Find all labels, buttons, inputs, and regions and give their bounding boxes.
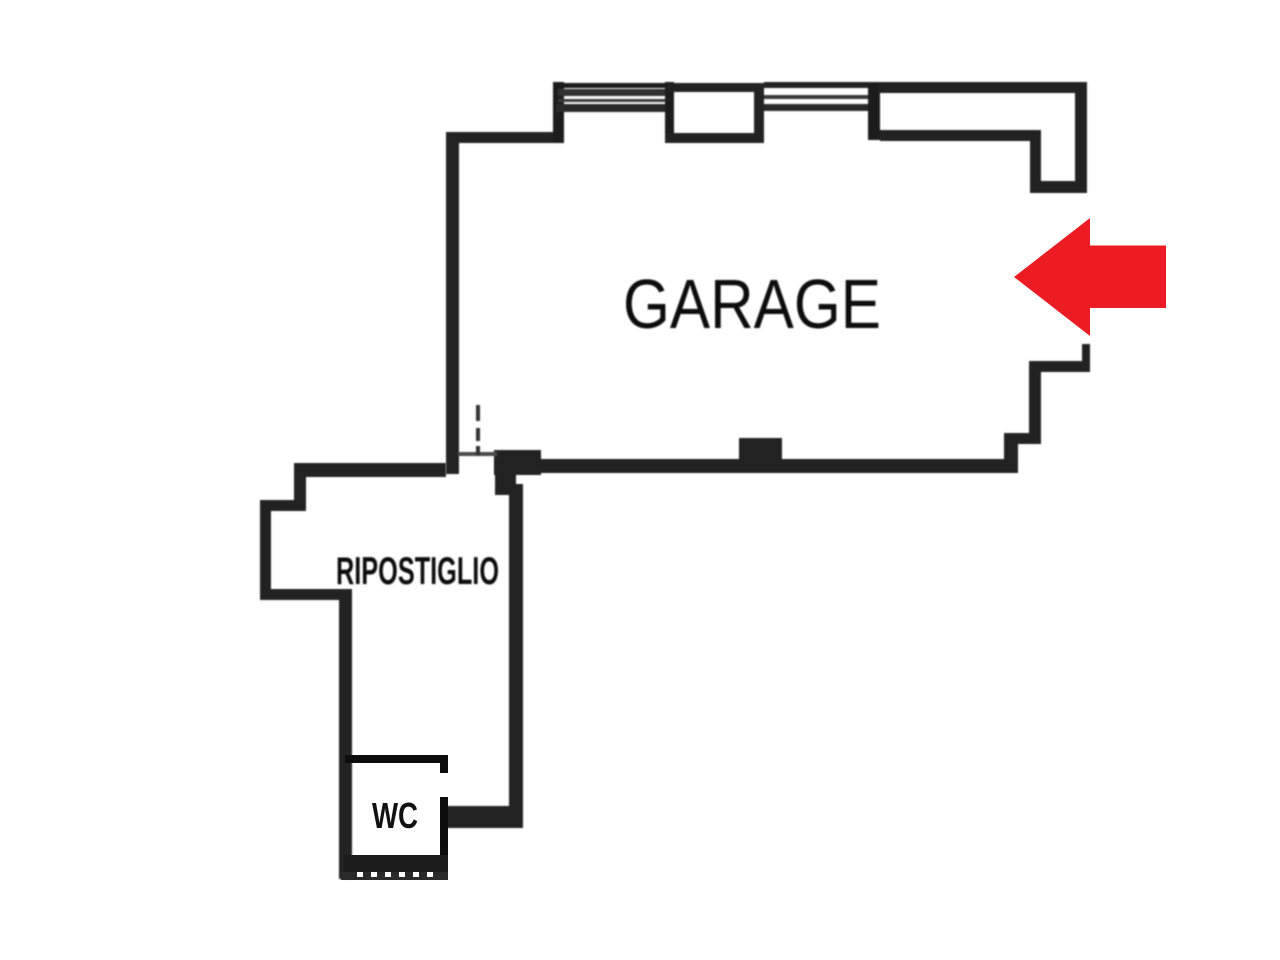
svg-text:GARAGE: GARAGE	[623, 265, 881, 343]
svg-text:WC: WC	[372, 795, 418, 836]
svg-text:RIPOSTIGLIO: RIPOSTIGLIO	[336, 550, 499, 593]
